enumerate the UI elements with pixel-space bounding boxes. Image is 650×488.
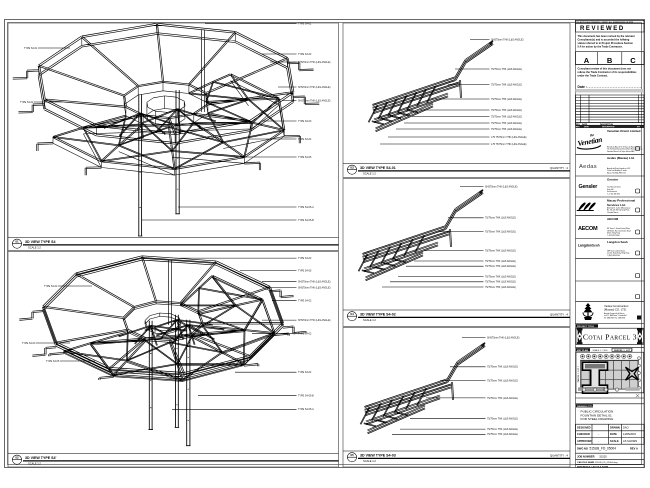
svg-text:under the Trade Contract.: under the Trade Contract. [578,74,609,77]
svg-text:75/75mm THK (L&S ANGLE): 75/75mm THK (L&S ANGLE) [491,122,522,125]
svg-text:T (852) 2830 3500: T (852) 2830 3500 [607,255,620,257]
svg-text:TYPE S4-04: TYPE S4-04 [298,138,312,141]
svg-text:75/75mm THK (L&S ANGLE): 75/75mm THK (L&S ANGLE) [485,265,516,268]
svg-text:75/75mm THK (L&S ANGLE): 75/75mm THK (L&S ANGLE) [491,109,522,112]
svg-text:CHECKED: CHECKED [577,432,590,436]
svg-text:TYPE S4-05: TYPE S4-05 [46,360,60,363]
svg-text:SHS70mm THK (L&S ANGLE): SHS70mm THK (L&S ANGLE) [298,319,331,322]
svg-text:DESIGNED: DESIGNED [577,426,591,430]
svg-text:3D VIEW TYPE S4': 3D VIEW TYPE S4' [25,456,57,460]
svg-text:LangdonSeah: LangdonSeah [578,244,600,248]
svg-text:T +1 415 433 3700: T +1 415 433 3700 [607,193,620,195]
svg-text:SHS75mm THK (L&S ANGLE): SHS75mm THK (L&S ANGLE) [485,186,518,189]
svg-text:SCALE 1:2: SCALE 1:2 [363,318,376,322]
svg-text:DAO: DAO [623,426,629,430]
svg-text:TYPE S4-05: TYPE S4-05 [298,269,312,272]
svg-text:TYPE S4-02: TYPE S4-02 [20,101,34,104]
svg-text:A: A [584,56,590,65]
svg-text:REFERENCE CAD FILE NAME: REFERENCE CAD FILE NAME [577,466,609,469]
svg-text:Date :: Date : [578,85,587,89]
svg-text:75/75mm THK (L&S ANGLE): 75/75mm THK (L&S ANGLE) [485,250,516,253]
svg-text:SHS70mm THK (L&S ANGLE): SHS70mm THK (L&S ANGLE) [298,99,331,102]
svg-text:3D VIEW TYPE S4-01: 3D VIEW TYPE S4-01 [360,166,396,170]
svg-text:04: 04 [350,312,354,316]
svg-text:REVIEWED: REVIEWED [580,26,625,32]
svg-text:TYPE S4-05: TYPE S4-05 [298,156,312,159]
svg-text:AECOM: AECOM [578,226,598,232]
svg-text:PARCEL 1, LOT 1: PARCEL 1, LOT 1 [577,365,580,382]
svg-text:75/75mm THK (L&S ANGLE): 75/75mm THK (L&S ANGLE) [487,418,518,421]
svg-text:Macau Tel (853) 2833 1113: Macau Tel (853) 2833 1113 [607,172,626,174]
svg-text:DWG NO: DWG NO [577,447,588,451]
svg-text:TYPE S4-01: TYPE S4-01 [298,23,312,26]
svg-text:T +852 3922 9000: T +852 3922 9000 [607,235,620,237]
svg-text:TYPE S4-01: TYPE S4-01 [24,47,38,50]
svg-text:B: B [607,56,613,65]
svg-text:Tel: 2838 9557 Fax: 2838 931: Tel: 2838 9557 Fax: 2838 9311 [604,318,625,320]
svg-text:Langdon Seah: Langdon Seah [607,240,628,244]
svg-text:75/75mm THK (L&S ANGLE): 75/75mm THK (L&S ANGLE) [485,231,516,234]
svg-text:TYPE S4-02: TYPE S4-02 [298,53,312,56]
svg-text:51520: 51520 [600,455,608,459]
svg-text:Venetian Orient Limited: Venetian Orient Limited [607,129,641,133]
svg-text:75/75mm THK (L&S ANGLE): 75/75mm THK (L&S ANGLE) [485,281,516,284]
svg-text:APPROVED: APPROVED [577,439,592,443]
svg-text:QUANTITY : 4: QUANTITY : 4 [550,453,568,457]
svg-text:DRAWING TITLE: DRAWING TITLE [577,405,595,408]
svg-text:75/75mm THK (L&S ANGLE): 75/75mm THK (L&S ANGLE) [487,428,518,431]
svg-text:TYPE S4-02: TYPE S4-02 [298,300,312,303]
svg-text:PROJECT TITLE: PROJECT TITLE [577,326,595,328]
svg-text:75/75mm THK (L&S ANGLE): 75/75mm THK (L&S ANGLE) [485,286,516,289]
svg-text:L75 75/75mm THK (L&S ANGLE): L75 75/75mm THK (L&S ANGLE) [491,136,527,139]
svg-text:TYPE S4-05-B: TYPE S4-05-B [298,395,314,398]
svg-text:SCALE 1:2: SCALE 1:2 [28,461,41,465]
svg-text:3D VIEW TYPE S4: 3D VIEW TYPE S4 [25,240,56,244]
svg-text:AECOM: AECOM [607,217,619,221]
svg-text:75/75mm THK (L&S ANGLE): 75/75mm THK (L&S ANGLE) [491,83,522,86]
svg-text:TYPE S4-05-B: TYPE S4-05-B [298,219,314,222]
svg-text:L75 75/75mm THK (L&S ANGLE): L75 75/75mm THK (L&S ANGLE) [491,143,527,146]
svg-text:01: 01 [15,240,19,244]
svg-text:TYPE S4-03: TYPE S4-03 [298,120,312,123]
svg-text:Gensler: Gensler [579,184,599,190]
svg-text:SCALE: SCALE [610,439,619,443]
svg-text:SCALE 1:2: SCALE 1:2 [363,459,376,463]
svg-text:TYPE S4-05-A: TYPE S4-05-A [298,206,314,209]
svg-text:03: 03 [350,166,354,170]
svg-text:QUANTITY : 4: QUANTITY : 4 [550,312,568,316]
svg-text:SHS70mm THK (L&S ANGLE): SHS70mm THK (L&S ANGLE) [298,281,331,284]
svg-text:DATE: DATE [610,432,617,436]
svg-text:SHS70mm THK (L&S ANGLE): SHS70mm THK (L&S ANGLE) [298,86,331,89]
svg-text:75/75mm THK (L&S ANGLE): 75/75mm THK (L&S ANGLE) [487,433,518,436]
svg-text:TYPE S4-04: TYPE S4-04 [298,371,312,374]
svg-text:CAD FILE NAME 515UB_FD_0500: CAD FILE NAME 515UB_FD_05004.dwg [577,461,618,464]
svg-text:-: - [598,433,599,436]
svg-text:QUANTITY : 4: QUANTITY : 4 [550,166,568,170]
svg-text:75/75mm THK (L&S ANGLE): 75/75mm THK (L&S ANGLE) [491,115,522,118]
svg-text:14/05/2015: 14/05/2015 [623,432,637,436]
svg-text:75/75mm THK (L&S ANGLE): 75/75mm THK (L&S ANGLE) [487,380,518,383]
svg-text:SCALE 1:2: SCALE 1:2 [28,245,41,249]
svg-text:JOB NUMBER: JOB NUMBER [577,455,595,459]
svg-text:75/75mm THK (L&S ANGLE): 75/75mm THK (L&S ANGLE) [485,276,516,279]
svg-text:KEY PLAN: KEY PLAN [577,349,588,352]
svg-text:(Macau) CO. LTD.: (Macau) CO. LTD. [604,308,627,312]
svg-text:75/75mm THK (L&S ANGLE): 75/75mm THK (L&S ANGLE) [485,217,516,220]
svg-text:TYPE S4-02: TYPE S4-02 [44,285,58,288]
svg-text:05: 05 [350,453,354,457]
svg-text:FOR STEEL DRAWING: FOR STEEL DRAWING [581,417,614,421]
svg-text:Gensler: Gensler [607,178,619,182]
svg-text:SHS70mm THK (L&S ANGLE): SHS70mm THK (L&S ANGLE) [298,61,331,64]
svg-text:75/75mm THK (L&S ANGLE): 75/75mm THK (L&S ANGLE) [487,366,518,369]
svg-text:SCALE 1:2: SCALE 1:2 [363,171,376,175]
svg-text:3D VIEW TYPE S4-03: 3D VIEW TYPE S4-03 [360,453,396,457]
svg-text:75/75mm THK (L&S ANGLE): 75/75mm THK (L&S ANGLE) [491,68,522,71]
svg-text:75/75mm THK (L&S ANGLE): 75/75mm THK (L&S ANGLE) [487,397,518,400]
svg-text:TYPE S4-02: TYPE S4-02 [298,333,312,336]
svg-text:75/75mm THK (L&S ANGLE): 75/75mm THK (L&S ANGLE) [491,128,522,131]
svg-text:TYPE S4-05-A: TYPE S4-05-A [298,408,314,411]
svg-text:5.4 for action by the Trade Co: 5.4 for action by the Trade Contractor. [578,45,623,48]
svg-text:3D VIEW TYPE S4-02: 3D VIEW TYPE S4-02 [360,312,396,316]
svg-text:75/75mm THK (L&S ANGLE): 75/75mm THK (L&S ANGLE) [485,260,516,263]
svg-text:75/75mm THK (L&S ANGLE): 75/75mm THK (L&S ANGLE) [491,98,522,101]
svg-text:SHS75mm THK (L&S ANGLE): SHS75mm THK (L&S ANGLE) [487,336,520,339]
svg-text:02: 02 [15,456,19,460]
svg-text:-: - [598,440,599,443]
svg-text:TYPE S4-02: TYPE S4-02 [298,257,312,260]
svg-text:SHS75mm THK (L&S ANGLE): SHS75mm THK (L&S ANGLE) [491,38,524,41]
svg-text:C: C [630,56,636,65]
svg-text:DRAWN: DRAWN [610,426,620,430]
svg-text:Services Ltd.: Services Ltd. [607,203,626,207]
svg-text:SHS70mm THK (L&S ANGLE): SHS70mm THK (L&S ANGLE) [298,287,331,290]
svg-text:SCALE 1 : 7,500: SCALE 1 : 7,500 [593,349,609,352]
svg-text:TYPE S4-03: TYPE S4-03 [22,342,36,345]
svg-text:Aedas: Aedas [579,164,597,170]
svg-text:REV A: REV A [630,447,638,451]
svg-text:PARCEL 1, LOT 2: PARCEL 1, LOT 2 [614,349,633,352]
svg-text:515UB_FD_05004: 515UB_FD_05004 [590,447,617,451]
svg-text:AS SHOWN: AS SHOWN [623,439,637,443]
svg-text:Aedas (Macau) Ltd.: Aedas (Macau) Ltd. [607,156,635,160]
